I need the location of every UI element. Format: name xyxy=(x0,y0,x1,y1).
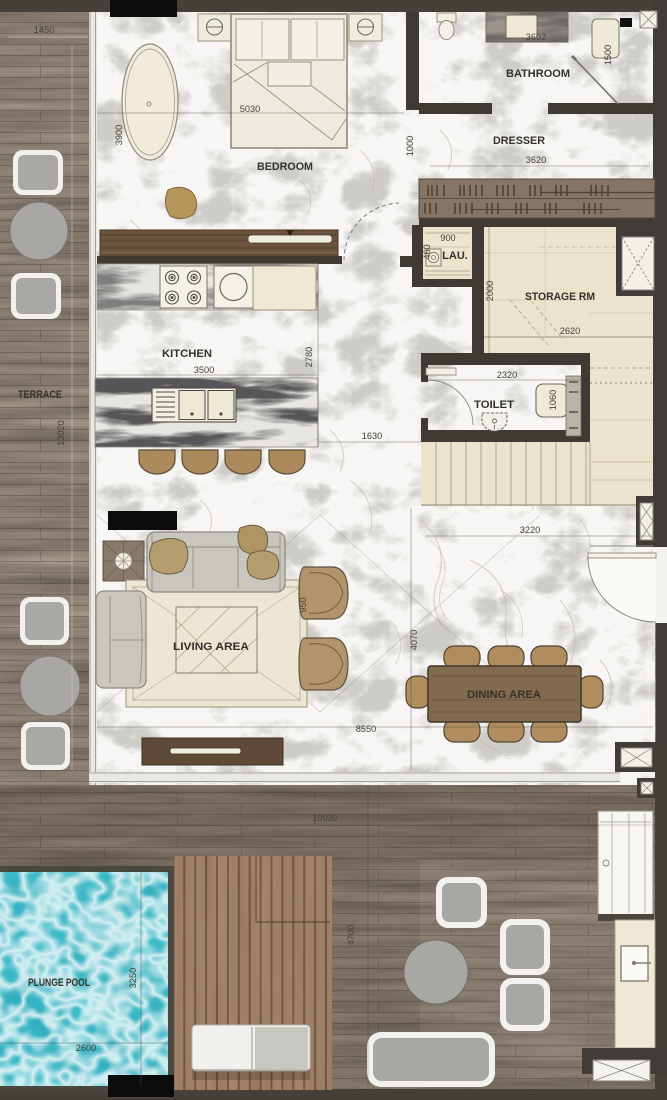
svg-text:2000: 2000 xyxy=(485,281,495,301)
svg-text:3900: 3900 xyxy=(114,125,124,145)
svg-text:DRESSER: DRESSER xyxy=(493,135,545,147)
svg-text:2600: 2600 xyxy=(76,1043,96,1053)
svg-text:3250: 3250 xyxy=(128,968,138,988)
svg-text:1450: 1450 xyxy=(34,25,54,35)
svg-text:10030: 10030 xyxy=(312,813,338,823)
svg-text:5030: 5030 xyxy=(240,104,260,114)
svg-text:BATHROOM: BATHROOM xyxy=(506,68,570,80)
svg-text:2320: 2320 xyxy=(497,370,517,380)
svg-text:BEDROOM: BEDROOM xyxy=(257,161,313,173)
svg-text:KITCHEN: KITCHEN xyxy=(162,348,212,360)
svg-text:3500: 3500 xyxy=(194,365,214,375)
svg-text:LIVING AREA: LIVING AREA xyxy=(173,641,249,653)
svg-text:TERRACE: TERRACE xyxy=(18,389,62,401)
svg-text:8550: 8550 xyxy=(356,724,376,734)
svg-text:900: 900 xyxy=(440,233,455,243)
svg-text:4700: 4700 xyxy=(346,925,356,945)
svg-text:LAU.: LAU. xyxy=(442,250,468,262)
svg-text:1000: 1000 xyxy=(405,136,415,156)
svg-text:3220: 3220 xyxy=(520,525,540,535)
svg-text:PLUNGE POOL: PLUNGE POOL xyxy=(28,977,90,989)
svg-text:STORAGE RM: STORAGE RM xyxy=(525,291,595,303)
svg-text:3620: 3620 xyxy=(526,155,546,165)
svg-text:1630: 1630 xyxy=(362,431,382,441)
svg-text:1060: 1060 xyxy=(548,390,558,410)
svg-text:950: 950 xyxy=(298,597,308,612)
svg-text:1500: 1500 xyxy=(603,45,613,65)
svg-text:3602: 3602 xyxy=(526,32,546,42)
svg-text:DINING AREA: DINING AREA xyxy=(467,689,541,701)
svg-text:TOILET: TOILET xyxy=(474,399,514,411)
svg-text:2620: 2620 xyxy=(560,326,580,336)
svg-text:13020: 13020 xyxy=(56,420,66,446)
svg-text:2780: 2780 xyxy=(304,347,314,367)
svg-text:4070: 4070 xyxy=(409,630,419,650)
svg-text:460: 460 xyxy=(422,244,432,259)
